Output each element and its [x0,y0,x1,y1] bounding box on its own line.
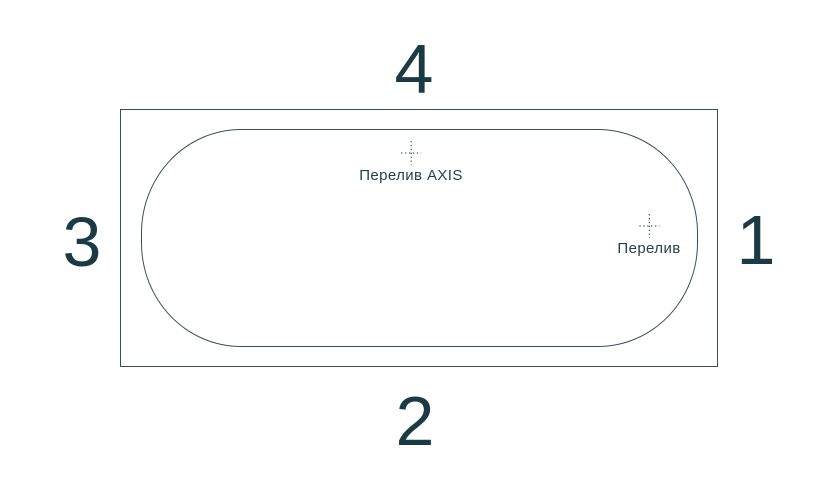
overflow-axis-label: Перелив AXIS [359,168,463,183]
side-label-left: 3 [63,207,102,277]
overflow-marker: Перелив [617,213,680,256]
side-label-top: 4 [395,34,434,104]
side-label-bottom: 2 [396,386,435,456]
crosshair-icon [637,213,661,239]
overflow-label: Перелив [617,241,680,256]
bathtub-top-view-diagram: 4 1 2 3 Перелив AXIS Перелив [0,0,828,480]
overflow-axis-marker: Перелив AXIS [359,140,463,183]
side-label-right: 1 [737,205,776,275]
crosshair-icon [399,140,423,166]
